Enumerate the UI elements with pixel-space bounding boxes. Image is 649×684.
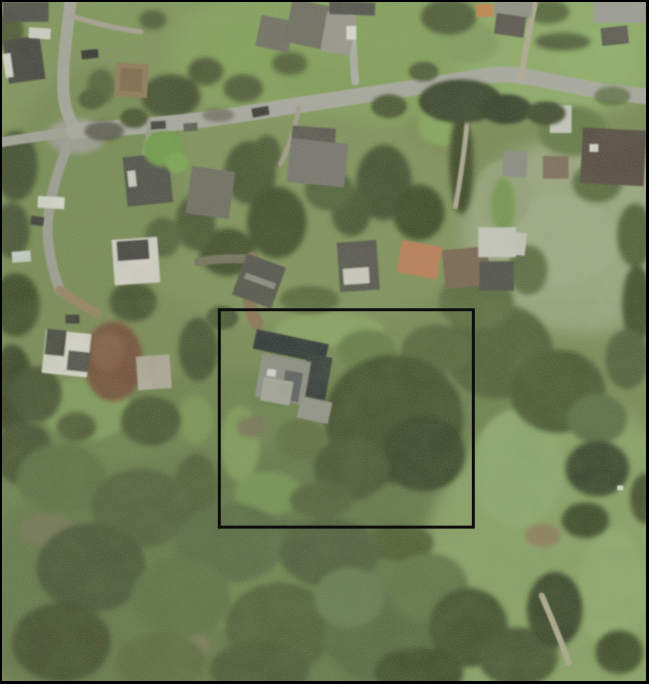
scene-svg	[2, 2, 646, 681]
layer-grain-texture	[2, 2, 646, 681]
aerial-photo	[0, 0, 649, 684]
photo-grain	[2, 2, 646, 681]
